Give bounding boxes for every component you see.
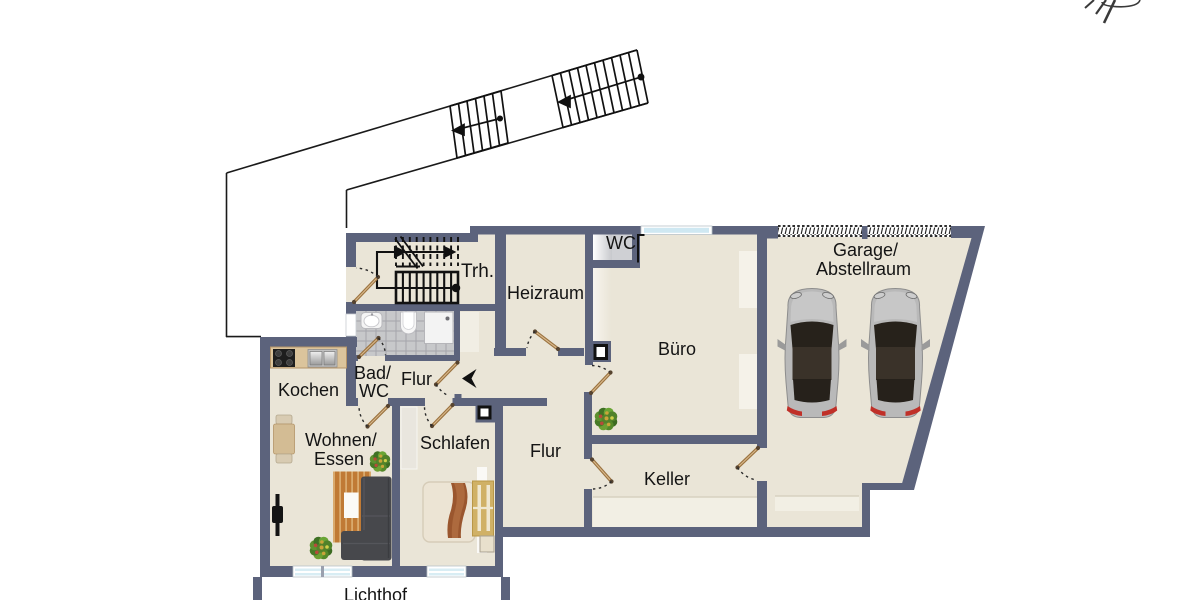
svg-text:Lichthof: Lichthof [344, 585, 408, 600]
svg-text:Büro: Büro [658, 339, 696, 359]
svg-text:Essen: Essen [314, 449, 364, 469]
svg-text:Bad/: Bad/ [354, 363, 391, 383]
svg-text:Garage/: Garage/ [833, 240, 898, 260]
svg-text:Flur: Flur [530, 441, 561, 461]
svg-text:Keller: Keller [644, 469, 690, 489]
svg-text:Schlafen: Schlafen [420, 433, 490, 453]
svg-text:Heizraum: Heizraum [507, 283, 584, 303]
svg-text:WC: WC [606, 233, 636, 253]
svg-text:Flur: Flur [401, 369, 432, 389]
svg-text:Abstellraum: Abstellraum [816, 259, 911, 279]
svg-text:Trh.: Trh. [461, 261, 494, 282]
svg-text:Wohnen/: Wohnen/ [305, 430, 377, 450]
svg-text:Kochen: Kochen [278, 380, 339, 400]
svg-text:WC: WC [359, 381, 389, 401]
